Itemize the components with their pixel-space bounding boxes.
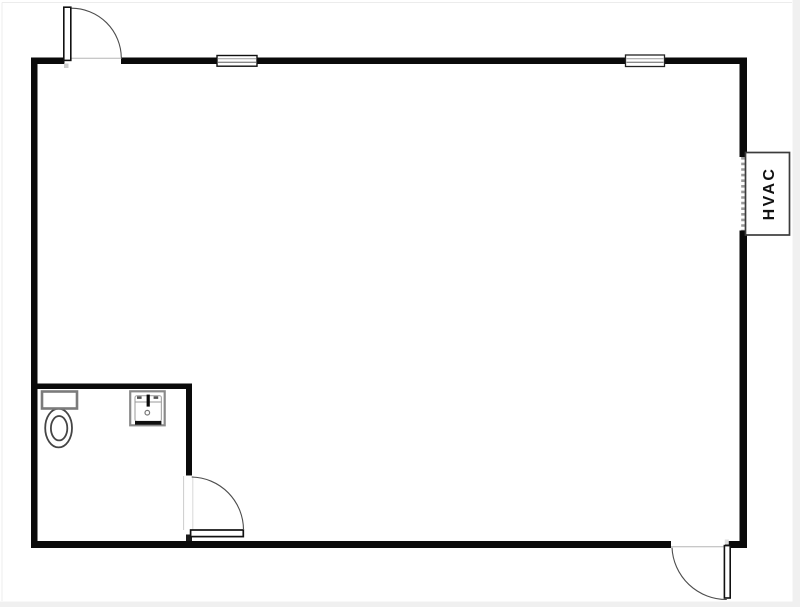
svg-text:HVAC: HVAC <box>761 167 778 221</box>
